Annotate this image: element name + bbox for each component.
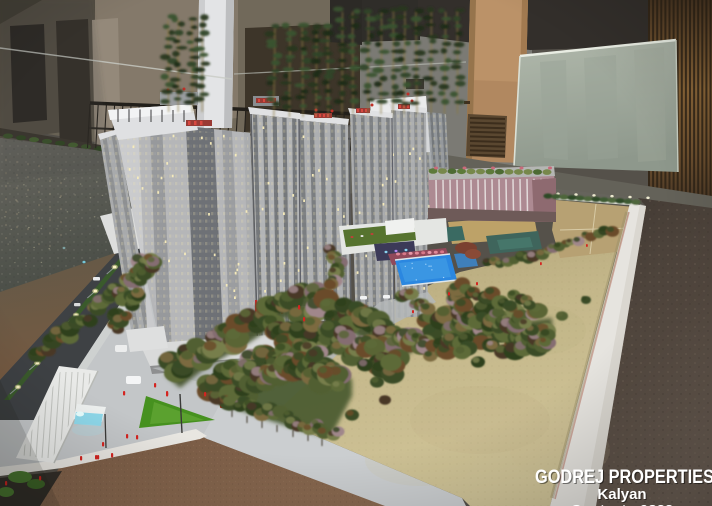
svg-text:GODREJ PROPERTIES: GODREJ PROPERTIES — [535, 467, 712, 488]
svg-text:Contact : 9833: Contact : 9833 — [571, 502, 674, 506]
svg-text:Kalyan: Kalyan — [597, 486, 646, 503]
